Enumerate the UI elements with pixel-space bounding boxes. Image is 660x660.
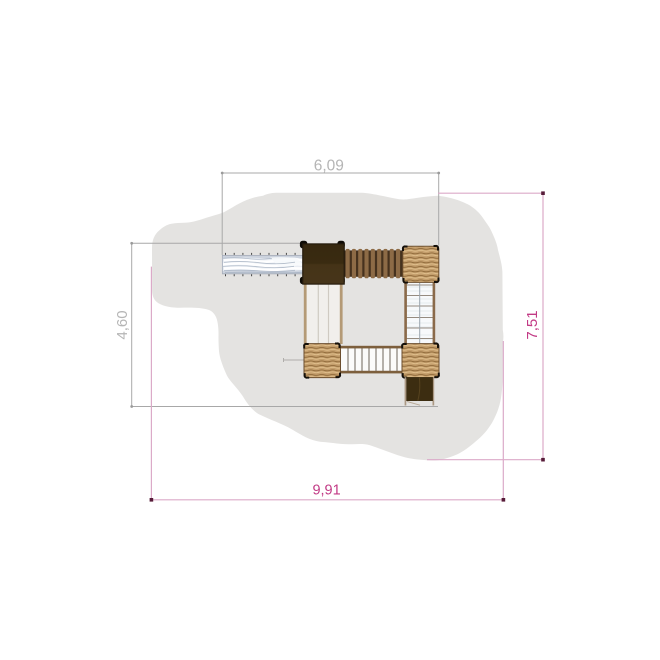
svg-text:4,60: 4,60 [114,310,131,339]
svg-text:7,51: 7,51 [524,310,541,339]
svg-text:6,09: 6,09 [314,158,344,175]
svg-text:9,91: 9,91 [312,483,340,499]
